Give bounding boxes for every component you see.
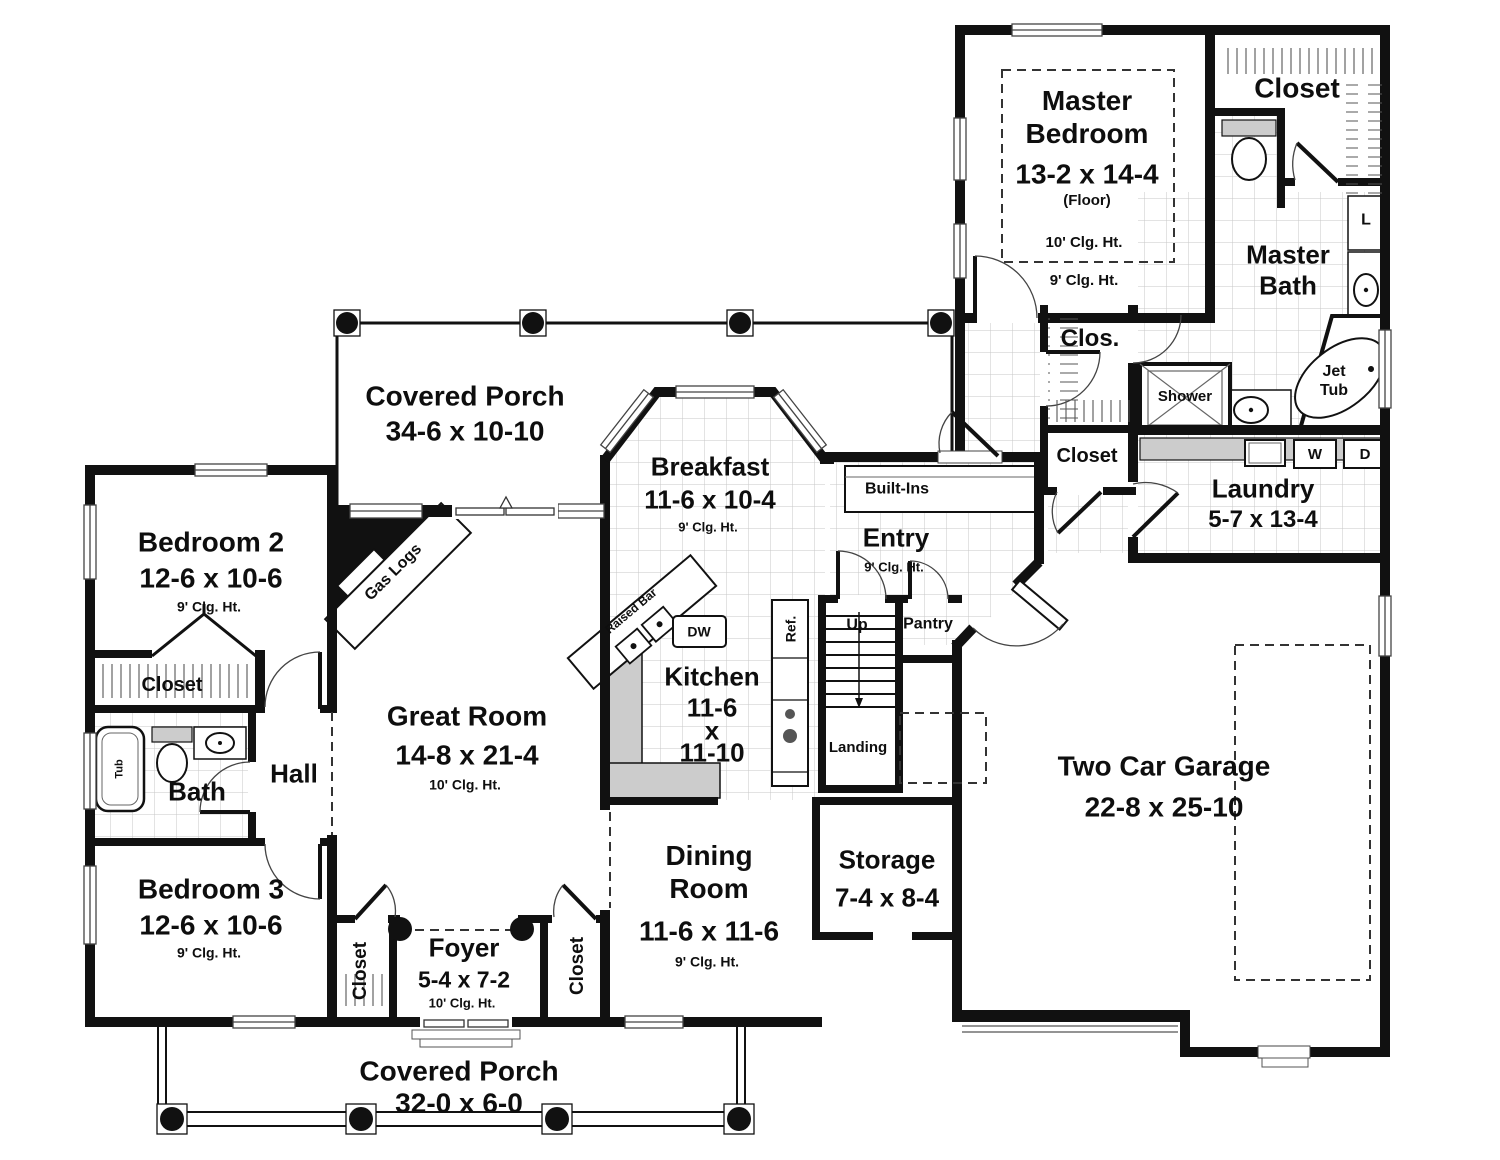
bedroom3-clg: 9' Clg. Ht.: [177, 945, 241, 962]
column-icon: [334, 310, 360, 336]
window-icon: [954, 118, 966, 180]
dishwasher-label: DW: [687, 624, 710, 641]
window-icon: [558, 504, 604, 518]
dryer-label: D: [1360, 446, 1371, 464]
bedroom3-dims: 12-6 x 10-6: [139, 908, 282, 941]
column-icon: [724, 1104, 754, 1134]
window-icon: [84, 733, 96, 809]
window-icon: [84, 505, 96, 579]
great-room-dims: 14-8 x 21-4: [395, 738, 538, 771]
window-icon: [625, 1016, 683, 1028]
floor-plan: Covered Porch 34-6 x 10-10 Master Bedroo…: [0, 0, 1500, 1160]
kitchen-name: Kitchen: [664, 662, 759, 693]
garage-dashed-area: [1235, 645, 1370, 980]
window-icon: [676, 386, 754, 398]
window-icon: [1379, 596, 1391, 656]
door-icon: [355, 885, 395, 919]
breakfast-name: Breakfast: [651, 452, 770, 483]
utility-platform: [900, 713, 986, 783]
tub-label: Tub: [114, 759, 127, 778]
bath-name: Bath: [168, 777, 226, 808]
column-icon: [346, 1104, 376, 1134]
column-icon: [510, 917, 534, 941]
door-icon: [554, 885, 596, 919]
jet-tub-label: Jet Tub: [1311, 363, 1357, 401]
kitchen-dim-l: 11-10: [679, 738, 744, 769]
column-icon: [727, 310, 753, 336]
column-icon: [928, 310, 954, 336]
column-icon: [542, 1104, 572, 1134]
foyer-dims: 5-4 x 7-2: [418, 966, 510, 993]
laundry-sink-icon: [1245, 440, 1285, 466]
storage-dims: 7-4 x 8-4: [835, 883, 939, 914]
entry-name: Entry: [863, 523, 929, 554]
master-bedroom-tray-clg: 10' Clg. Ht.: [1046, 234, 1123, 252]
shower-label: Shower: [1158, 388, 1212, 406]
window-icon: [84, 866, 96, 944]
laundry-name: Laundry: [1212, 474, 1315, 505]
master-closet-name: Closet: [1254, 71, 1340, 104]
foyer-clg: 10' Clg. Ht.: [429, 995, 496, 1010]
porch-columns: [157, 310, 954, 1134]
master-bath-name: Master Bath: [1228, 239, 1348, 300]
bedroom2-dims: 12-6 x 10-6: [139, 561, 282, 594]
bedroom2-closet-name: Closet: [141, 674, 202, 698]
storage-name: Storage: [839, 845, 936, 876]
garage-name: Two Car Garage: [1058, 749, 1271, 782]
column-icon: [520, 310, 546, 336]
master-bedroom-clg: 9' Clg. Ht.: [1050, 272, 1119, 290]
column-icon: [157, 1104, 187, 1134]
great-room-name: Great Room: [387, 699, 547, 732]
door-icon: [975, 256, 1037, 318]
door-icon: [1293, 143, 1338, 182]
porch-french-door: [452, 497, 558, 519]
door-icon: [265, 652, 320, 709]
hall-closet-name: Closet: [1056, 445, 1117, 469]
dining-dims: 11-6 x 11-6: [639, 914, 779, 947]
foyer-closet-right-name: Closet: [567, 937, 589, 995]
stairs-up-label: Up: [846, 617, 867, 636]
washer-label: W: [1308, 446, 1322, 464]
window-icon: [195, 464, 267, 476]
master-bedroom-name: Master Bedroom: [1002, 84, 1172, 150]
foyer-name: Foyer: [429, 933, 500, 964]
dining-name: Dining Room: [629, 839, 789, 905]
toilet-icon: [1232, 138, 1266, 180]
bedroom2-clg: 9' Clg. Ht.: [177, 599, 241, 616]
linen-label: L: [1361, 212, 1371, 231]
column-icon: [388, 917, 412, 941]
garage-service-door: [1258, 1046, 1310, 1067]
master-bedroom-dims: 13-2 x 14-4: [1015, 157, 1158, 190]
hall-name: Hall: [270, 759, 318, 790]
laundry-dims: 5-7 x 13-4: [1208, 506, 1317, 534]
sink-fitting-icon: [785, 709, 795, 719]
foyer-closet-left-name: Closet: [350, 942, 372, 1000]
garage-dims: 22-8 x 25-10: [1085, 790, 1244, 823]
clos-name: Clos.: [1061, 325, 1120, 353]
front-porch-dims: 32-0 x 6-0: [395, 1086, 523, 1119]
front-porch-name: Covered Porch: [359, 1054, 558, 1087]
window-icon: [1379, 330, 1391, 408]
refrigerator-label: Ref.: [783, 616, 800, 642]
rear-porch-dims: 34-6 x 10-10: [386, 414, 545, 447]
dining-clg: 9' Clg. Ht.: [675, 954, 739, 971]
entry-clg: 9' Clg. Ht.: [864, 559, 923, 574]
great-room-clg: 10' Clg. Ht.: [429, 777, 501, 794]
master-bedroom-note: (Floor): [1063, 192, 1110, 210]
window-icon: [233, 1016, 295, 1028]
pantry-label: Pantry: [903, 616, 953, 635]
window-icon: [954, 224, 966, 278]
breakfast-dims: 11-6 x 10-4: [644, 485, 776, 516]
bedroom2-name: Bedroom 2: [138, 525, 284, 558]
window-icon: [1012, 24, 1102, 36]
bedroom3-name: Bedroom 3: [138, 872, 284, 905]
rear-porch-name: Covered Porch: [365, 379, 564, 412]
breakfast-clg: 9' Clg. Ht.: [678, 519, 737, 534]
window-icon: [350, 504, 422, 518]
garage-door-face: [962, 1026, 1178, 1032]
sink-fitting-icon: [783, 729, 797, 743]
built-ins-label: Built-Ins: [865, 481, 929, 500]
front-entry-door: [412, 1015, 520, 1047]
landing-label: Landing: [829, 739, 887, 757]
